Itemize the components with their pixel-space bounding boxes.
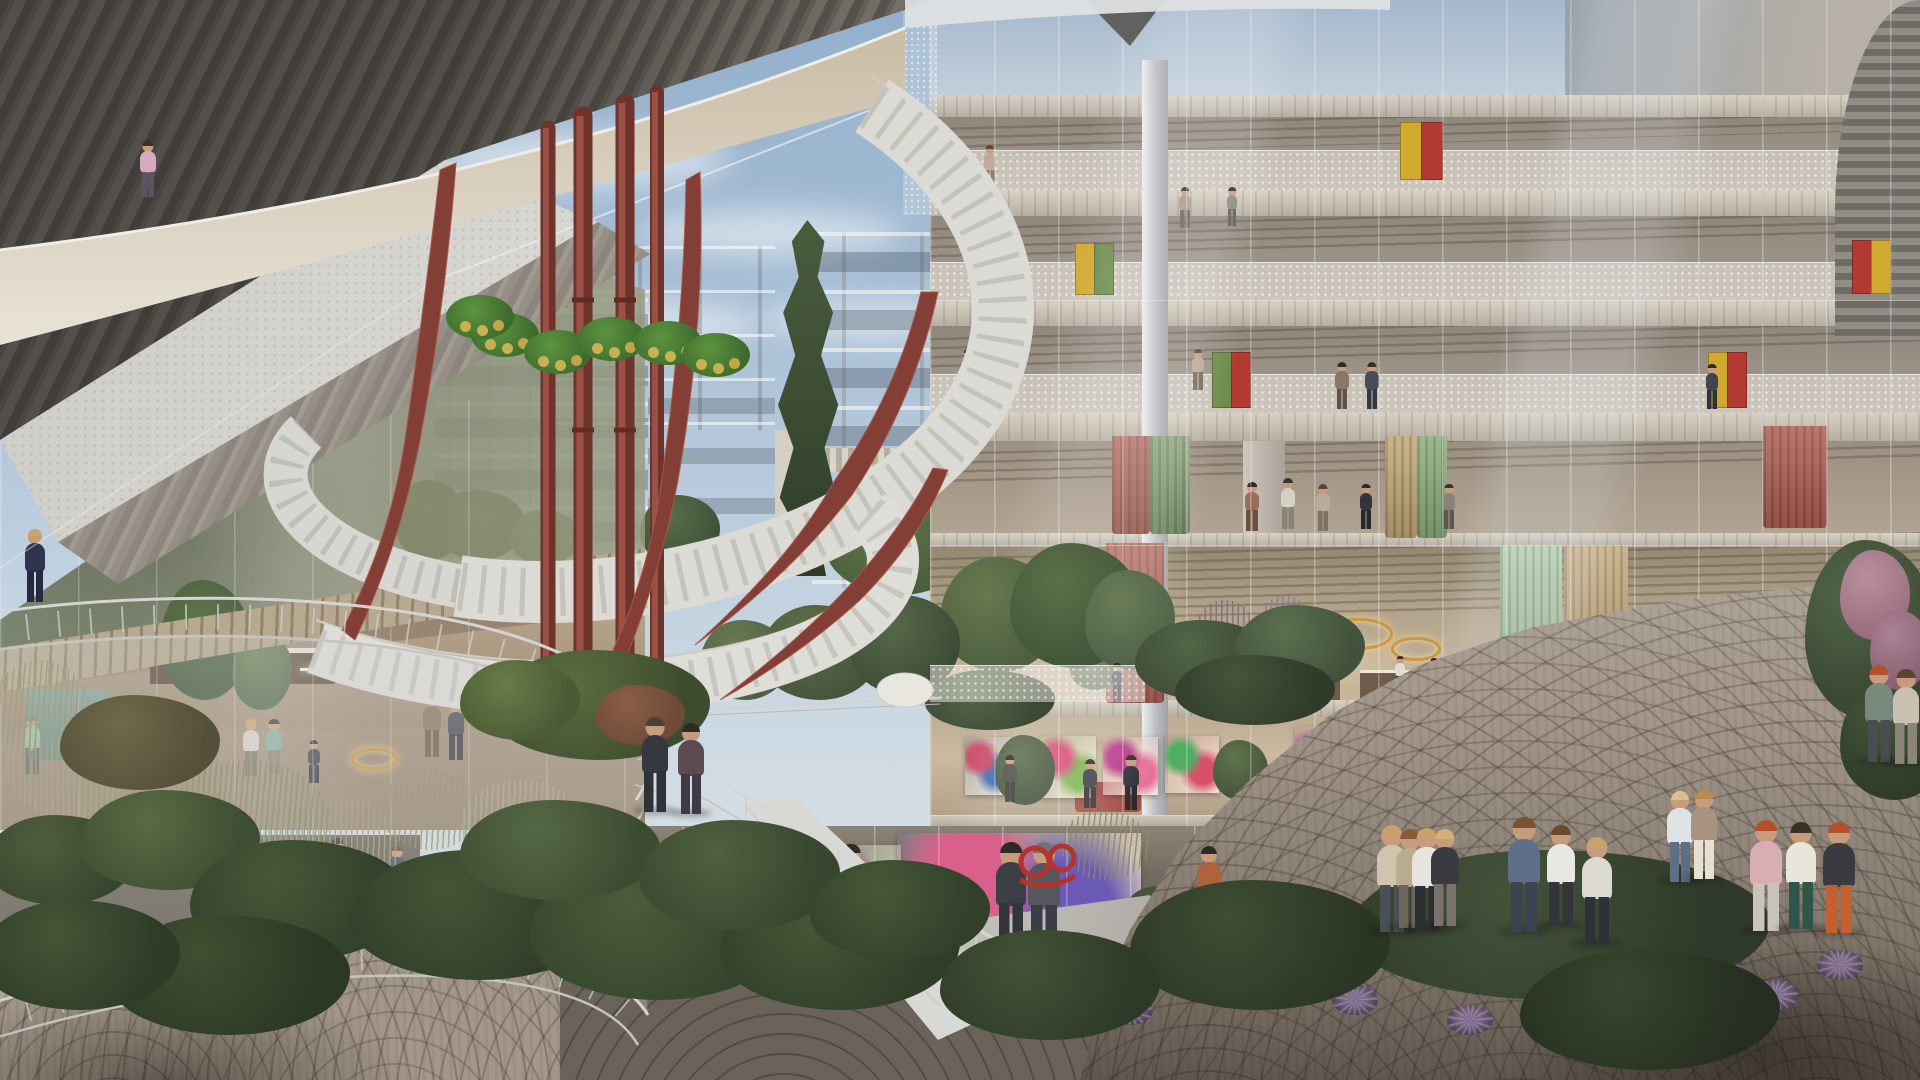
curtain <box>1763 426 1827 528</box>
plant-mass <box>1350 850 1770 1000</box>
person-shadow <box>1776 924 1826 932</box>
person-hair <box>1316 656 1323 660</box>
person <box>1442 485 1457 529</box>
person-head <box>392 847 403 858</box>
person-head <box>682 724 700 742</box>
person-legs <box>1399 885 1422 928</box>
gallery-mural <box>815 845 901 929</box>
plant-mass <box>1120 886 1200 952</box>
purple-rosette-plant <box>1817 950 1863 980</box>
person-legs <box>1125 786 1137 810</box>
bridge-rail-mid <box>700 796 1016 982</box>
person <box>676 724 707 814</box>
person <box>1393 830 1426 928</box>
person-head <box>426 695 438 707</box>
person <box>1705 365 1720 409</box>
person-torso <box>1691 807 1716 842</box>
ramp-rail-return <box>0 940 648 1015</box>
person-torso <box>448 712 465 735</box>
person-legs <box>1282 507 1294 529</box>
person-torso <box>155 718 170 740</box>
person <box>1410 829 1445 931</box>
person-legs <box>1228 209 1237 226</box>
gallery-painting <box>1103 737 1158 795</box>
glass-seam <box>930 815 1920 816</box>
person-head <box>1551 826 1571 846</box>
linear-pendant-light <box>140 654 204 657</box>
lemon-plant-cluster <box>446 295 514 339</box>
plant-mass <box>1085 570 1175 670</box>
grass-tuft <box>1193 598 1256 661</box>
plant-mass <box>1840 680 1920 800</box>
person-shadow <box>1403 926 1452 934</box>
person <box>1863 666 1896 762</box>
plant-mass <box>460 800 660 900</box>
plant-mass <box>940 557 1060 672</box>
purple-rosette-plant <box>1512 970 1558 1000</box>
person-legs <box>268 750 280 774</box>
person-torso <box>1395 663 1405 677</box>
linear-pendant-light <box>228 642 282 645</box>
person-torso <box>329 849 346 872</box>
purple-rosette-plant <box>1207 975 1253 1005</box>
curtain <box>1500 545 1562 701</box>
slab <box>930 413 1920 441</box>
person-torso <box>996 862 1027 905</box>
locker <box>1708 352 1728 408</box>
plant-mass <box>0 815 135 905</box>
person-shadow <box>829 934 874 942</box>
person-hair <box>26 715 38 721</box>
vignette <box>0 0 1920 1080</box>
person-head <box>1695 791 1713 809</box>
plant-mass <box>530 860 790 1000</box>
cobblestones-left <box>0 900 760 1080</box>
person-legs <box>1868 720 1890 762</box>
lemons <box>648 347 659 358</box>
lemon-plant-cluster <box>682 333 750 377</box>
person-hair <box>1362 484 1371 488</box>
person-torso <box>1281 488 1295 508</box>
person-legs <box>391 877 403 901</box>
person-legs <box>425 730 439 757</box>
person <box>1544 826 1578 926</box>
purple-rosette-plant <box>1042 970 1088 1000</box>
person-hair <box>51 874 62 880</box>
person-torso <box>1263 667 1273 681</box>
cafe-glass <box>0 400 650 840</box>
person-legs <box>738 926 750 950</box>
cafe-table <box>310 887 370 893</box>
dome-canopy <box>877 673 933 707</box>
person-legs <box>142 172 155 197</box>
person-torso <box>1179 195 1190 211</box>
grass-tuft <box>75 720 225 850</box>
cobble-shading <box>1080 560 1920 1080</box>
right-building: Coffee <box>0 0 1920 1080</box>
lemons <box>538 356 549 367</box>
architectural-rendering: Coffee <box>0 0 1920 1080</box>
plant-mass <box>1130 880 1390 1010</box>
lemons <box>592 343 603 354</box>
purple-rosette-plant <box>1677 1020 1723 1050</box>
person-hair <box>646 717 665 726</box>
plant-mass <box>720 880 960 1010</box>
person-shadow <box>1422 921 1468 929</box>
person-torso <box>1758 665 1768 679</box>
locker <box>1212 352 1232 408</box>
person-shadow <box>1813 928 1865 936</box>
person-hair <box>1194 349 1202 353</box>
plant-mass <box>1520 950 1780 1070</box>
person-legs <box>1337 389 1348 409</box>
person <box>47 875 66 931</box>
awning <box>818 522 892 544</box>
person <box>690 895 710 953</box>
plant-mass <box>925 670 1055 730</box>
person-head <box>1828 823 1850 845</box>
person-torso <box>1340 767 1354 787</box>
person-head <box>1755 821 1777 843</box>
ribbed-soffit-lower <box>0 0 1920 1080</box>
glass-landscape-reflection <box>0 250 645 700</box>
person-hair <box>1381 825 1402 836</box>
plant-mass <box>460 660 580 740</box>
office-desk <box>1360 670 1500 700</box>
plant-mass <box>1840 550 1910 640</box>
plant-mass <box>760 605 880 700</box>
background-trees <box>0 0 1920 1080</box>
person-hair <box>1283 478 1293 483</box>
mid-greenery <box>0 0 1920 1080</box>
floor-3 <box>930 325 1920 413</box>
stem-foliage <box>0 0 1920 1080</box>
person-torso <box>962 358 974 375</box>
person-torso <box>1192 357 1203 373</box>
person-torso <box>423 706 441 731</box>
person-hair <box>1400 829 1420 839</box>
canopy-structure <box>0 0 1920 1080</box>
person <box>23 530 47 602</box>
red-blades <box>342 163 948 700</box>
person-torso <box>642 735 669 773</box>
person-legs <box>1193 372 1202 390</box>
plant-mass <box>1235 605 1365 690</box>
glass-sky-reflection <box>930 0 1570 98</box>
person <box>1334 363 1350 409</box>
person <box>307 741 321 783</box>
person-hair <box>1397 656 1404 659</box>
person-legs <box>1826 885 1851 933</box>
white-canopy-top <box>905 0 1390 28</box>
curtain <box>1417 436 1447 538</box>
person-legs <box>1444 510 1454 529</box>
person-torso <box>25 543 46 572</box>
person-torso <box>1083 769 1097 788</box>
glass-fin <box>1142 60 1168 815</box>
person-legs <box>1180 210 1189 228</box>
red-sculpture <box>1020 846 1075 885</box>
person-hair <box>1000 842 1022 853</box>
person-torso <box>1865 683 1892 721</box>
person-torso <box>1750 841 1781 885</box>
person-hair <box>1201 846 1217 854</box>
person-head <box>1342 758 1352 768</box>
person-shadow <box>1018 948 1070 956</box>
person-head <box>1513 818 1536 841</box>
person-head <box>269 720 280 731</box>
person-head <box>310 741 318 749</box>
person-shadow <box>1884 759 1920 767</box>
person-shadow <box>806 931 853 939</box>
ribbon-edge <box>0 28 905 250</box>
slab <box>930 190 1920 216</box>
person-hair <box>158 707 169 712</box>
person-hair <box>1431 658 1438 661</box>
lemon-plant-cluster <box>524 330 592 374</box>
person-shadow <box>633 807 678 815</box>
person-legs <box>1380 885 1405 932</box>
person-legs <box>693 927 706 953</box>
person-head <box>1318 485 1327 494</box>
old-building-penthouse <box>552 246 775 430</box>
person-head <box>450 702 462 714</box>
person-head <box>1194 350 1202 358</box>
person-hair <box>1513 817 1536 828</box>
lemons <box>460 321 471 332</box>
curtain <box>1106 543 1164 703</box>
locker <box>1421 122 1443 180</box>
lemon-plant-cluster <box>471 313 539 357</box>
sunken-glass <box>618 826 1312 976</box>
lemon-plant-cluster <box>578 317 646 361</box>
slab <box>930 533 1920 547</box>
sunken-gallery-room <box>618 826 1312 976</box>
person-torso <box>1316 493 1329 511</box>
coffee-bar <box>1385 730 1655 798</box>
linear-pendant-light <box>300 668 370 671</box>
person <box>1757 659 1769 695</box>
grass-tuft <box>1058 808 1152 883</box>
person-torso <box>1335 371 1348 389</box>
right-building-body <box>930 0 1920 830</box>
office-desk <box>1690 668 1870 700</box>
plant-mass <box>850 595 960 695</box>
cypress-tree <box>766 220 852 576</box>
cafe-left <box>0 0 1920 1080</box>
person-shadow <box>1189 924 1228 932</box>
person-hair <box>1033 842 1055 853</box>
balcony-railing-1 <box>930 150 1920 191</box>
person-head <box>28 530 42 544</box>
grass-tuft <box>380 770 480 850</box>
person-head <box>1201 847 1217 863</box>
purple-rosette-plant <box>1457 945 1503 975</box>
person-hair <box>1671 791 1689 800</box>
person-hair <box>28 529 42 536</box>
person-hair <box>392 846 403 851</box>
locker <box>1852 240 1872 294</box>
bridge-posts <box>700 770 1020 985</box>
person-hair <box>1181 187 1189 191</box>
glass-sheen <box>930 0 1920 830</box>
person <box>154 708 172 762</box>
person-head <box>1337 363 1346 372</box>
balcony-railing-2 <box>930 262 1920 301</box>
locker <box>1727 352 1747 408</box>
person <box>961 350 975 392</box>
concrete-column <box>1243 440 1285 533</box>
person-legs <box>449 734 462 760</box>
person-legs <box>1200 893 1219 929</box>
person-torso <box>1431 847 1458 885</box>
balcony-railing-3 <box>930 374 1920 414</box>
cafe-counter <box>150 648 335 684</box>
ramp-rail-outer <box>0 598 652 800</box>
person-legs <box>1511 882 1537 932</box>
person-torso <box>81 886 96 907</box>
person-legs <box>1434 884 1456 926</box>
plant-mass <box>80 790 260 890</box>
person-hair <box>1367 362 1376 367</box>
cloud <box>760 300 980 340</box>
person-hair <box>426 694 438 700</box>
person <box>388 847 406 901</box>
gallery-painting <box>1295 727 1349 809</box>
person-torso <box>913 910 929 932</box>
terrace-railing <box>930 665 1145 702</box>
person-head <box>1085 760 1095 770</box>
ribbed-soffit-upper <box>0 0 1920 1080</box>
gallery-mural <box>897 833 1141 953</box>
person-legs <box>1694 840 1714 879</box>
person-head <box>964 350 972 358</box>
cable <box>0 284 430 568</box>
slab <box>930 300 1920 326</box>
bridge-rail-left <box>744 806 940 1006</box>
person <box>265 720 283 774</box>
person-head <box>1467 756 1476 765</box>
person-legs <box>840 898 862 939</box>
person <box>1665 792 1696 882</box>
spiral-treads-mid <box>286 432 458 586</box>
plant-mass <box>810 860 990 960</box>
person-torso <box>1003 764 1016 782</box>
plant-mass <box>0 900 180 1010</box>
plaza-people <box>0 0 1920 1080</box>
person-torso <box>1429 665 1439 679</box>
person-head <box>1759 659 1766 666</box>
person-head <box>142 141 153 152</box>
person-torso <box>984 154 996 171</box>
person-torso <box>142 514 158 536</box>
person <box>1122 756 1140 810</box>
person <box>911 900 930 956</box>
ring-pendant-light <box>1391 637 1441 661</box>
plant-mass <box>160 580 250 700</box>
person-legs <box>1670 842 1691 882</box>
floor-1 <box>930 115 1920 190</box>
person-hair <box>1759 658 1766 662</box>
person-head <box>986 146 994 154</box>
plant-mass <box>350 850 610 980</box>
person <box>1394 657 1406 691</box>
person-legs <box>1341 786 1353 808</box>
cobblestones-center-dark <box>560 955 1120 1080</box>
plant-mass <box>435 490 525 560</box>
spiral-treads-lower <box>316 514 893 690</box>
glass-seam <box>930 300 1920 301</box>
person-legs <box>25 748 38 774</box>
sunken-gallery <box>0 0 1920 1080</box>
person <box>22 716 42 774</box>
person <box>1002 756 1018 802</box>
person-torso <box>1123 766 1138 788</box>
person <box>1505 818 1544 932</box>
person-head <box>1113 664 1121 672</box>
person-legs <box>1549 882 1572 926</box>
grass-tuft <box>0 658 92 761</box>
ring-pendant-light <box>1747 615 1813 646</box>
person-torso <box>1028 863 1059 907</box>
plant-mass <box>640 495 720 565</box>
person-head <box>646 718 665 737</box>
person-torso <box>1220 668 1230 682</box>
spiral-railing-low <box>316 612 830 662</box>
grass-tuft <box>459 779 581 871</box>
person-torso <box>389 857 404 879</box>
purple-rosette-plant <box>1332 985 1378 1015</box>
person-legs <box>157 738 169 762</box>
person-shadow <box>1659 877 1702 885</box>
person-hair <box>331 838 343 844</box>
person-head <box>1400 830 1420 850</box>
person-legs <box>309 765 319 783</box>
person-legs <box>330 871 343 897</box>
person-legs <box>1415 886 1439 931</box>
ramp-rail-inner <box>0 636 650 830</box>
plant-mass <box>1010 543 1140 668</box>
person-hair <box>819 837 839 847</box>
person <box>1374 826 1410 932</box>
spiral-railing <box>872 76 1008 428</box>
person <box>138 141 157 197</box>
person <box>446 702 466 760</box>
red-sofa <box>1075 782 1141 812</box>
person-hair <box>1790 822 1811 833</box>
sunken-walkway-path <box>930 895 1200 1010</box>
locker <box>1231 352 1251 408</box>
person-shadow <box>1856 757 1902 765</box>
plant-mass <box>617 898 687 958</box>
plant-mass <box>640 820 840 930</box>
old-building-middle <box>648 380 775 588</box>
person-head <box>26 716 38 728</box>
person <box>1025 843 1062 953</box>
person-torso <box>24 726 41 749</box>
person-torso <box>1706 373 1719 391</box>
person-legs <box>82 906 94 929</box>
roof-wedge <box>1085 0 1165 46</box>
person-legs <box>1801 676 1809 691</box>
grass-tuft <box>2 697 138 824</box>
cable <box>432 96 906 282</box>
person-torso <box>1412 847 1441 888</box>
spiral-and-stems <box>0 0 1920 1080</box>
person-legs <box>1467 782 1478 802</box>
cafe-back-wall <box>0 610 645 730</box>
ring-pendant-light <box>1325 618 1393 650</box>
